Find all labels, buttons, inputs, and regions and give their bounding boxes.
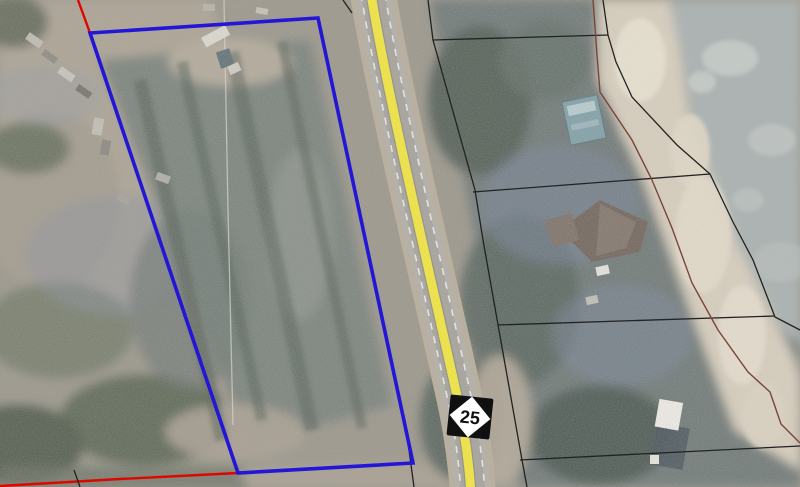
map-viewport[interactable]: 25 <box>0 0 800 487</box>
route-number: 25 <box>459 407 481 429</box>
photo-grain <box>0 0 800 487</box>
route-25-shield: 25 <box>446 394 493 439</box>
aerial-map[interactable]: 25 <box>0 0 800 487</box>
